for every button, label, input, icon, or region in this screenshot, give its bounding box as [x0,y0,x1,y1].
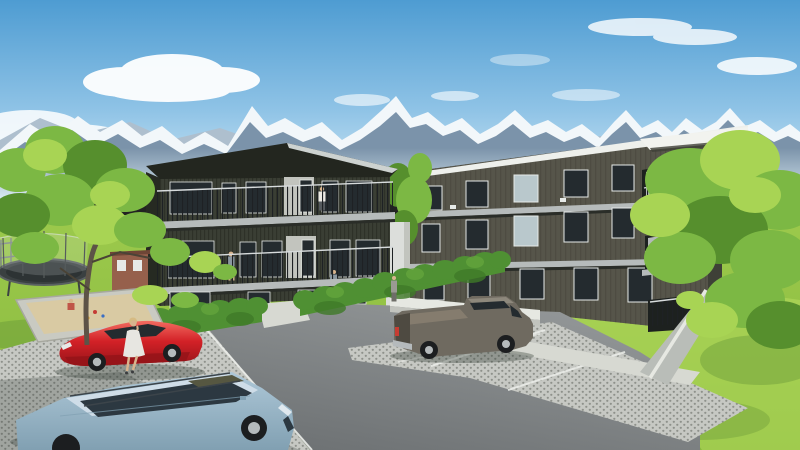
truck-taillight [395,327,399,336]
window [422,224,440,252]
window [612,165,634,191]
woman-shoe [125,372,128,375]
window [466,220,488,249]
vehicle-shadow [55,364,205,380]
window [564,212,588,242]
cloud [490,54,550,66]
window [564,170,588,197]
wheel-rim [425,346,433,354]
rendering-canvas: 3D architectural rendering of two modern… [0,0,800,450]
wheel-rim [93,358,101,366]
cloud [552,89,620,101]
vent-box [450,205,456,209]
wheel-rim [168,349,176,357]
side-mirror [240,396,246,400]
window [520,269,544,299]
woman-face [131,321,137,327]
cloud [717,57,797,75]
wheel-rim [248,422,260,434]
window [514,216,538,246]
toy [101,314,104,317]
window [574,268,598,300]
toy [93,310,97,314]
woman-shoe [131,371,134,374]
cloud [431,91,479,101]
scene-rendering [0,0,800,450]
window [514,175,538,202]
wheel-rim [502,340,510,348]
cloud [334,94,390,106]
window [466,181,488,207]
vent-box [560,198,566,202]
